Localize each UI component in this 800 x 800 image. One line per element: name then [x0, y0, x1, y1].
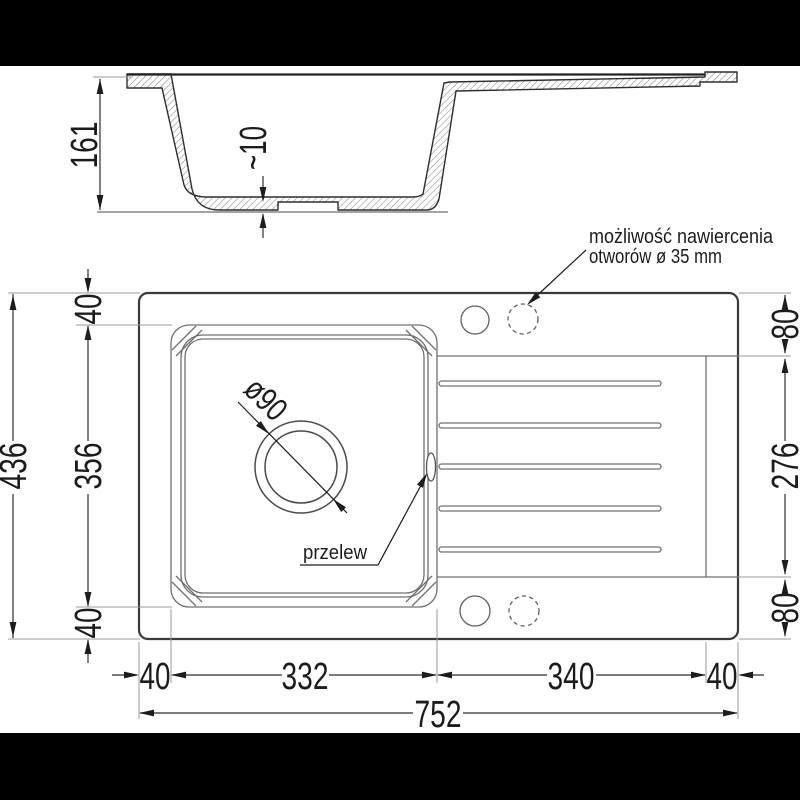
- overflow-slot: [427, 453, 436, 481]
- dim-label-height-total: 436: [0, 443, 35, 490]
- drill-note-line1: możliwość nawiercenia: [589, 226, 774, 248]
- section-view: 161 ~10: [64, 72, 737, 238]
- dim-label-bottom-left-margin: 40: [140, 656, 171, 698]
- top-letterbox-bar: [0, 0, 800, 66]
- dim-label-width-total: 752: [415, 694, 462, 736]
- drill-note-line2: otworów ø 35 mm: [589, 246, 722, 268]
- bottom-letterbox-bar: [0, 733, 800, 800]
- dim-arrow: [124, 672, 139, 679]
- dim-arrow: [10, 295, 17, 310]
- faucet-holes: [460, 304, 539, 626]
- dim-arrow: [97, 195, 104, 210]
- section-profile: [127, 72, 737, 210]
- dim-arrow: [691, 672, 706, 679]
- dim-label-bottom-thickness: ~10: [233, 126, 275, 170]
- dim-arrow: [782, 560, 789, 575]
- dim-arrow: [85, 592, 92, 607]
- drainer-groove: [439, 464, 661, 469]
- optional-hole-bottom: [509, 596, 539, 626]
- dim-label-left-bottom: 40: [68, 608, 110, 639]
- drainer-groove: [439, 547, 661, 552]
- dim-arrow: [723, 710, 738, 717]
- overflow-label: przelew: [303, 542, 368, 564]
- dim-arrow: [782, 579, 789, 594]
- faucet-hole-top: [461, 306, 489, 334]
- dim-arrow: [85, 325, 92, 340]
- dim-arrow: [171, 672, 186, 679]
- dim-arrow: [10, 622, 17, 637]
- drain-diameter-label: ø90: [237, 370, 295, 428]
- drainer-groove: [439, 506, 661, 511]
- dim-label-left-middle: 356: [68, 443, 110, 490]
- faucet-hole-bottom: [460, 596, 490, 626]
- overflow-leader-line: [378, 476, 426, 565]
- dim-arrow: [738, 672, 753, 679]
- dim-arrow: [782, 295, 789, 310]
- sink-technical-drawing: 161 ~10 ø90: [0, 0, 800, 800]
- drainer-groove: [439, 381, 661, 386]
- dim-arrow: [139, 710, 154, 717]
- dim-arrow: [97, 79, 104, 94]
- drawing-canvas: 161 ~10 ø90: [0, 0, 800, 800]
- dim-arrow: [260, 213, 267, 228]
- dim-label-right-bottom: 80: [765, 593, 800, 624]
- dim-label-bottom-bowl: 332: [282, 656, 329, 698]
- dim-label-depth: 161: [64, 122, 106, 169]
- dim-label-bottom-drainer: 340: [548, 656, 595, 698]
- dim-label-right-top: 80: [765, 309, 800, 340]
- drainer-groove: [439, 423, 661, 428]
- dim-arrow: [437, 672, 452, 679]
- optional-hole-top: [508, 304, 538, 334]
- dim-label-bottom-right-margin: 40: [707, 656, 738, 698]
- dim-label-left-top: 40: [68, 294, 110, 325]
- dim-arrow: [85, 639, 92, 654]
- dim-arrow: [782, 339, 789, 354]
- drainer: [437, 356, 738, 577]
- extension-lines: [8, 293, 791, 719]
- plan-view: ø90 przelew możliwość nawiercenia otworó: [139, 226, 774, 639]
- dim-label-right-middle: 276: [765, 443, 800, 490]
- dim-arrow: [422, 672, 437, 679]
- dim-arrow: [782, 358, 789, 373]
- drain-diameter-line: [238, 402, 347, 513]
- dim-arrow: [85, 278, 92, 293]
